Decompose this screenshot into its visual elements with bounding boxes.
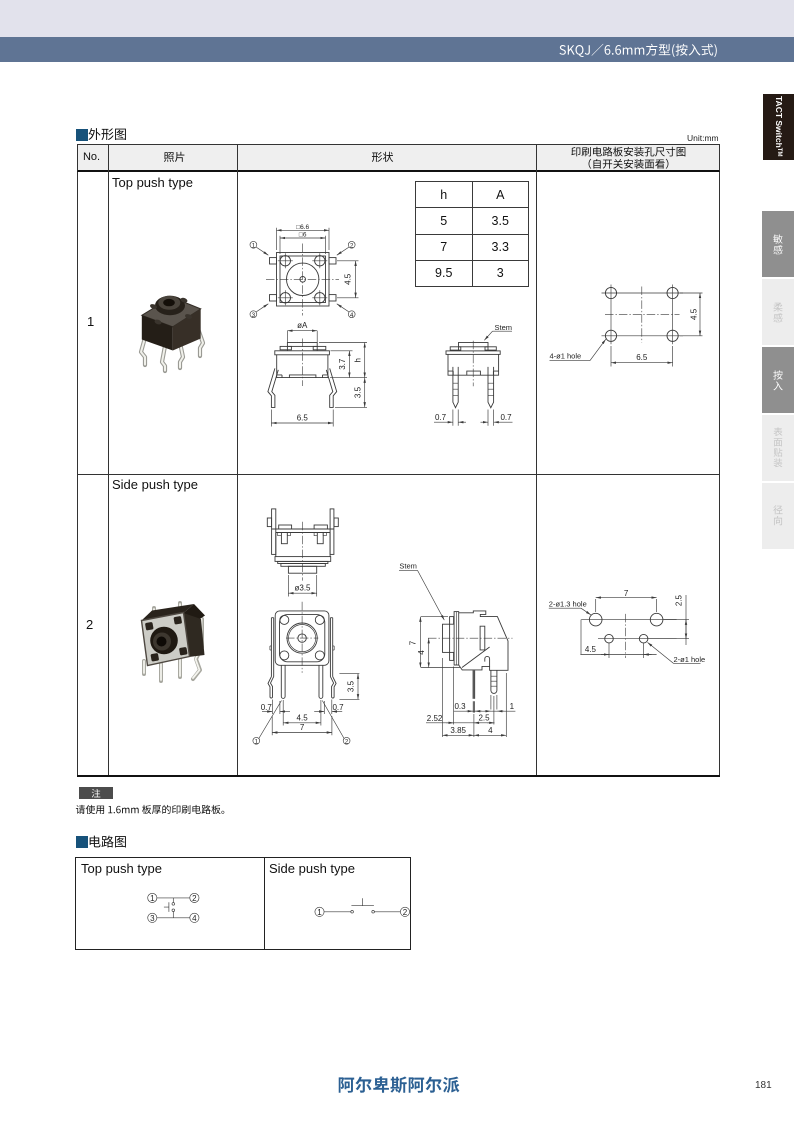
svg-text:1: 1 xyxy=(150,894,155,903)
svg-text:4: 4 xyxy=(350,313,354,319)
svg-text:7: 7 xyxy=(300,723,305,732)
svg-text:0.7: 0.7 xyxy=(435,413,447,422)
svg-text:0.7: 0.7 xyxy=(261,703,273,712)
svg-text:4: 4 xyxy=(488,726,493,735)
svg-text:7: 7 xyxy=(624,589,629,598)
svg-text:2: 2 xyxy=(345,739,349,745)
svg-text:øA: øA xyxy=(297,321,308,330)
svg-text:3.85: 3.85 xyxy=(450,726,466,735)
svg-text:4.5: 4.5 xyxy=(585,645,597,654)
svg-text:3: 3 xyxy=(150,914,155,923)
svg-text:0.7: 0.7 xyxy=(500,413,512,422)
svg-text:4: 4 xyxy=(417,650,426,655)
svg-text:0.7: 0.7 xyxy=(332,703,344,712)
svg-text:3.7: 3.7 xyxy=(338,358,347,370)
svg-text:h: h xyxy=(353,358,362,362)
svg-text:ø3.5: ø3.5 xyxy=(294,584,311,593)
svg-text:6.5: 6.5 xyxy=(297,414,309,423)
svg-text:Stem: Stem xyxy=(495,323,513,332)
svg-text:2: 2 xyxy=(350,243,354,249)
svg-text:□6.6: □6.6 xyxy=(296,224,309,231)
svg-text:0.3: 0.3 xyxy=(454,702,466,711)
svg-text:1: 1 xyxy=(255,739,259,745)
svg-text:2: 2 xyxy=(403,908,408,917)
svg-text:1: 1 xyxy=(252,243,256,249)
svg-text:2-ø1 hole: 2-ø1 hole xyxy=(674,655,706,664)
svg-text:2.52: 2.52 xyxy=(427,714,443,723)
svg-text:4: 4 xyxy=(192,914,197,923)
svg-text:4.5: 4.5 xyxy=(344,273,353,285)
svg-text:□6: □6 xyxy=(299,232,307,239)
svg-text:4.5: 4.5 xyxy=(689,308,698,320)
svg-text:Stem: Stem xyxy=(399,562,417,571)
svg-text:2.5: 2.5 xyxy=(478,713,490,722)
svg-text:2.5: 2.5 xyxy=(674,594,683,606)
svg-text:3.5: 3.5 xyxy=(347,680,356,692)
svg-text:4.5: 4.5 xyxy=(297,713,309,722)
svg-text:7: 7 xyxy=(408,640,417,645)
svg-text:3: 3 xyxy=(252,313,256,319)
svg-text:4-ø1 hole: 4-ø1 hole xyxy=(550,352,582,361)
svg-text:6.5: 6.5 xyxy=(636,353,648,362)
svg-text:1: 1 xyxy=(510,702,515,711)
svg-text:3.5: 3.5 xyxy=(353,386,362,398)
svg-text:2-ø1.3 hole: 2-ø1.3 hole xyxy=(549,600,587,609)
svg-text:2: 2 xyxy=(192,894,197,903)
svg-text:1: 1 xyxy=(317,908,322,917)
